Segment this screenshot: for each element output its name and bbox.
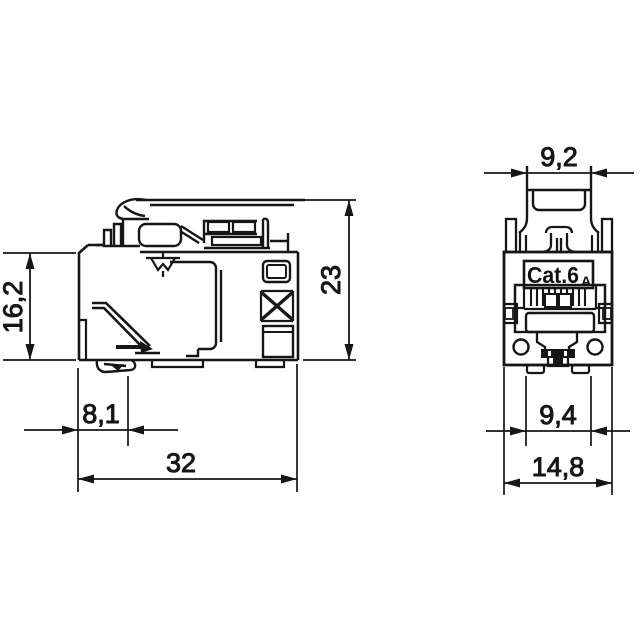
- side-latch-housing: [139, 224, 181, 246]
- side-view: [79, 199, 305, 372]
- front-shield-nub: [553, 358, 563, 364]
- dim-label-latch-width: 9,2: [540, 142, 578, 172]
- dim-label-total-depth: 32: [166, 448, 196, 478]
- front-jack-center-box-right: [559, 294, 571, 307]
- dim-label-total-width: 14,8: [532, 452, 585, 482]
- side-cap-plate: [212, 237, 261, 245]
- dimension-front-height: 16,2: [0, 253, 76, 360]
- front-shield-tab: [537, 332, 577, 350]
- front-cap: [519, 166, 599, 233]
- front-jack-window: [526, 313, 594, 332]
- dimension-total-height: 23: [303, 200, 356, 360]
- side-cap-block-1: [208, 222, 229, 232]
- front-hole-left: [514, 340, 529, 355]
- side-inner-housing: [170, 262, 221, 356]
- front-latch-nose: [541, 227, 577, 252]
- front-shoulder-left: [506, 219, 516, 252]
- front-shoulder-inner-bars: [520, 233, 598, 252]
- dim-label-total-height: 23: [316, 265, 346, 295]
- dimension-latch-width: 9,2: [484, 142, 634, 189]
- front-hole-right: [588, 340, 603, 355]
- side-latch-assembly: [96, 199, 149, 246]
- technical-drawing: Cat.6 A 16,2: [0, 0, 640, 640]
- dimension-foot-width: 9,4: [486, 376, 630, 446]
- side-idc-box-top-inner: [267, 265, 286, 278]
- dimension-latch-depth: 8,1: [24, 368, 178, 492]
- front-shoulder-right: [602, 219, 612, 252]
- side-idc-box-bottom: [263, 326, 293, 357]
- drawing-canvas: Cat.6 A 16,2: [0, 0, 640, 640]
- front-notch-left-inner: [505, 308, 513, 319]
- dim-label-front-height: 16,2: [0, 281, 28, 334]
- front-jack-center-box-left: [545, 294, 557, 307]
- front-shield-bar: [541, 349, 575, 358]
- front-view: Cat.6 A: [504, 166, 612, 373]
- dim-label-foot-width: 9,4: [539, 400, 577, 430]
- front-shield-slit-2: [564, 351, 567, 356]
- side-catch-detail: [146, 252, 180, 277]
- side-cap-block-2: [233, 222, 255, 232]
- front-shield-slit-1: [548, 351, 551, 356]
- front-label-subscript: A: [581, 273, 591, 289]
- side-cross-x: [261, 292, 293, 320]
- dim-label-latch-depth: 8,1: [82, 399, 120, 429]
